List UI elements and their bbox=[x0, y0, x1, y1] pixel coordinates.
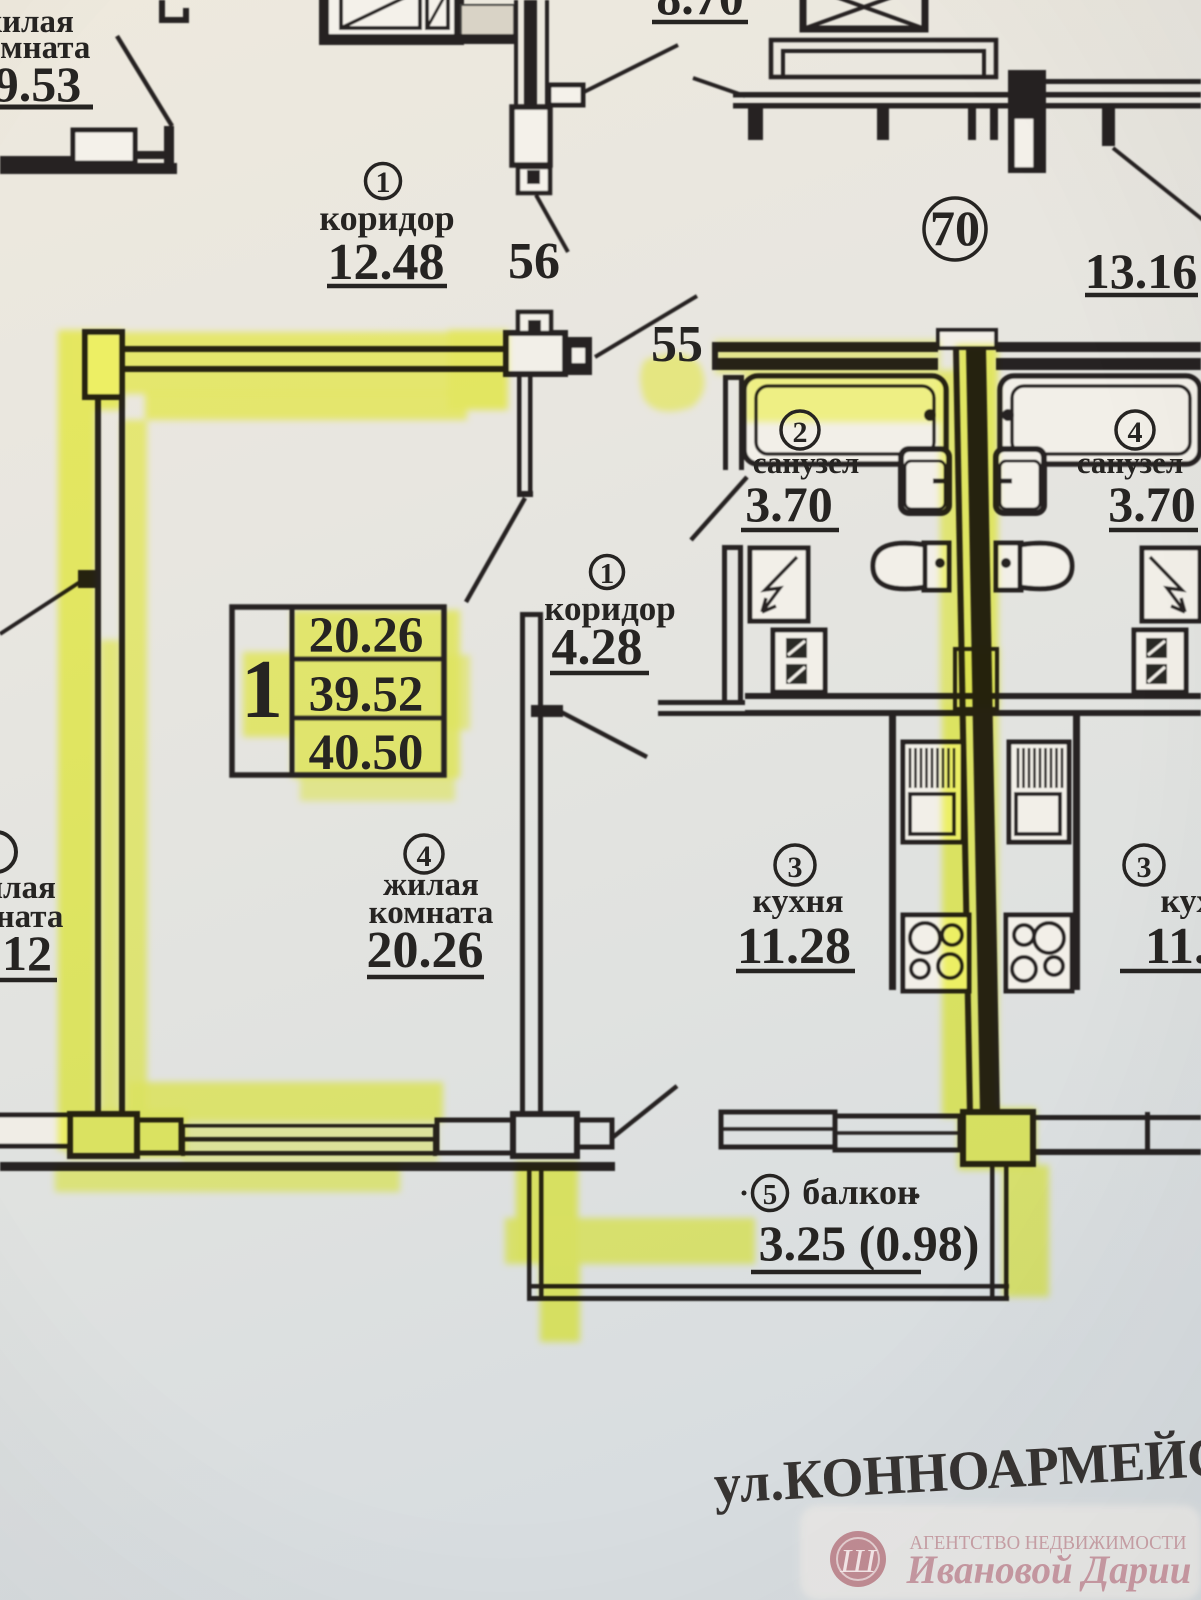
svg-text:Ивановой Дарии: Ивановой Дарии bbox=[906, 1547, 1192, 1592]
svg-text:Ш: Ш bbox=[839, 1543, 877, 1580]
